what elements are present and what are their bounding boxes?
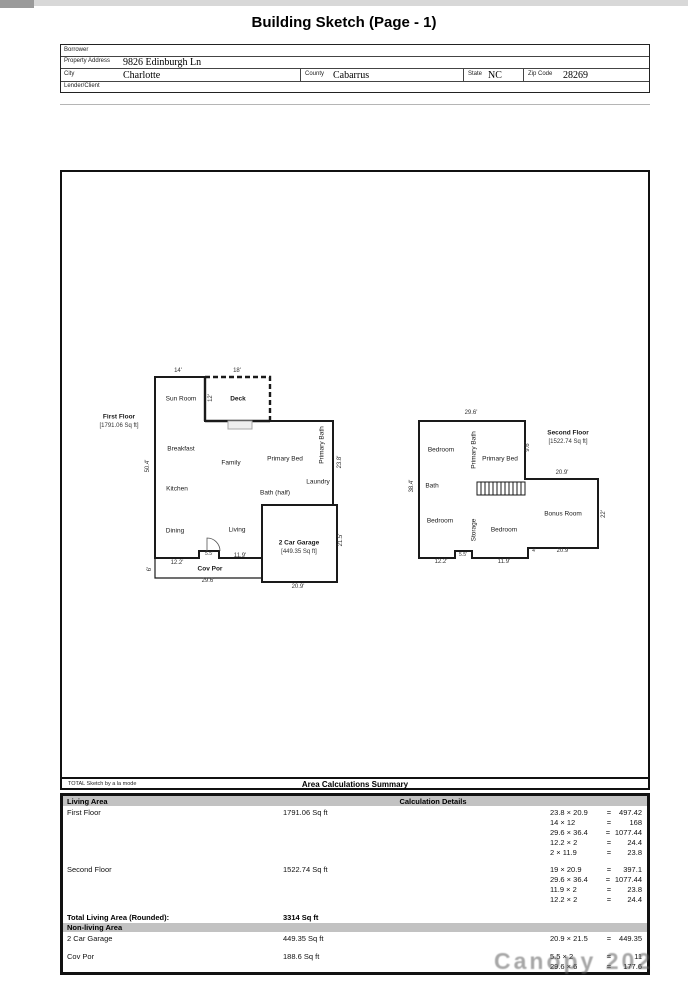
ff-room-breakfast: Breakfast (167, 446, 194, 453)
form-underline (60, 104, 650, 105)
calc-line: 29.6 × 36.4=1077.44 (550, 828, 642, 838)
ff-dim-11-9: 11.9' (234, 553, 246, 559)
ff-title: First Floor (103, 414, 135, 421)
form-col-divider (463, 68, 464, 81)
calc-result: 397.1 (616, 865, 642, 875)
watermark: Canopy 202 (494, 948, 653, 975)
form-row-divider (61, 81, 649, 82)
page-title: Building Sketch (Page - 1) (0, 14, 688, 31)
area-calculations-summary-title: Area Calculations Summary (62, 780, 648, 789)
calc-expr: 23.8 × 20.9 (550, 808, 602, 818)
ff-area: [1791.06 Sq ft] (99, 423, 138, 429)
ff-room-cov-por: Cov Por (198, 566, 223, 573)
equals-sign: = (602, 934, 616, 944)
sf-title: Second Floor (547, 430, 589, 437)
equals-sign: = (602, 865, 616, 875)
calc-expr: 11.9 × 2 (550, 885, 602, 895)
second-floor-calcs: 19 × 20.9=397.1 29.6 × 36.4=1077.44 11.9… (550, 865, 642, 905)
equals-sign: = (601, 828, 615, 838)
ff-dim-23-8: 23.8' (337, 456, 343, 469)
zip-code-value: 28269 (563, 70, 588, 81)
calc-expr: 2 × 11.9 (550, 848, 602, 858)
ff-dim-29-6: 29.6' (202, 578, 215, 584)
calc-result: 23.8 (616, 885, 642, 895)
ff-dim-14: 14' (174, 368, 182, 374)
sf-room-bath: Bath (425, 483, 438, 490)
state-label: State (468, 71, 482, 77)
calc-line: 19 × 20.9=397.1 (550, 865, 642, 875)
equals-sign: = (602, 808, 616, 818)
first-floor-row-label: First Floor (67, 808, 101, 817)
ff-room-deck: Deck (230, 396, 246, 403)
ff-room-living: Living (229, 527, 246, 534)
ff-dim-12: 12' (208, 394, 214, 402)
total-living-area-value: 3314 Sq ft (283, 913, 318, 922)
ff-room-primary-bed: Primary Bed (267, 456, 303, 463)
calc-line: 11.9 × 2=23.8 (550, 885, 642, 895)
sketch-footer-divider (62, 777, 648, 779)
living-area-header: Living Area (67, 797, 108, 806)
ff-room-sun-room: Sun Room (166, 396, 197, 403)
cov-por-row-value: 188.6 Sq ft (283, 952, 319, 961)
sf-dim-38-4: 38.4' (409, 480, 415, 493)
calc-result: 449.35 (616, 934, 642, 944)
equals-sign: = (601, 875, 615, 885)
property-form: Borrower Property Address 9826 Edinburgh… (60, 44, 650, 93)
ff-garage-area: [449.35 Sq ft] (281, 549, 317, 555)
city-label: City (64, 71, 74, 77)
calc-line: 2 × 11.9=23.8 (550, 848, 642, 858)
state-value: NC (488, 70, 502, 81)
calc-line: 20.9 × 21.5=449.35 (550, 934, 642, 944)
equals-sign: = (602, 818, 616, 828)
second-floor-row-value: 1522.74 Sq ft (283, 865, 328, 874)
ff-room-bath-half: Bath (half) (260, 490, 290, 497)
equals-sign: = (602, 895, 616, 905)
second-floor-row-label: Second Floor (67, 865, 112, 874)
sketch-box: TOTAL Sketch by a la mode Area Calculati… (60, 170, 650, 790)
non-living-area-header: Non-living Area (67, 923, 122, 932)
sf-dim-22: 22' (601, 510, 607, 518)
ff-room-garage: 2 Car Garage (279, 540, 319, 547)
calc-result: 23.8 (616, 848, 642, 858)
garage-calcs: 20.9 × 21.5=449.35 (550, 934, 642, 944)
sf-dim-9-6: 9.6' (525, 442, 531, 452)
calc-line: 29.6 × 36.4=1077.44 (550, 875, 642, 885)
ff-room-dining: Dining (166, 528, 184, 535)
sf-room-bonus-room: Bonus Room (544, 511, 582, 518)
total-living-area-label: Total Living Area (Rounded): (67, 913, 169, 922)
ff-dim-6: 6' (147, 567, 153, 571)
ff-dim-50-4: 50.4' (145, 460, 151, 473)
sf-dim-4: 4' (532, 548, 536, 554)
calc-expr: 12.2 × 2 (550, 838, 602, 848)
first-floor-row-value: 1791.06 Sq ft (283, 808, 328, 817)
equals-sign: = (602, 838, 616, 848)
ff-dim-18: 18' (233, 368, 241, 374)
ff-room-primary-bath: Primary Bath (319, 426, 326, 464)
garage-row-label: 2 Car Garage (67, 934, 112, 943)
first-floor-calcs: 23.8 × 20.9=497.42 14 × 12=168 29.6 × 36… (550, 808, 642, 858)
sf-dim-20-9-lower: 20.9' (557, 548, 570, 554)
form-row-divider (61, 68, 649, 69)
calc-expr: 19 × 20.9 (550, 865, 602, 875)
calc-expr: 20.9 × 21.5 (550, 934, 602, 944)
calc-line: 23.8 × 20.9=497.42 (550, 808, 642, 818)
calc-line: 12.2 × 2=24.4 (550, 895, 642, 905)
top-left-corner-block (0, 0, 34, 8)
cov-por-row-label: Cov Por (67, 952, 94, 961)
sf-dim-11-9: 11.9' (498, 559, 510, 565)
garage-row-value: 449.35 Sq ft (283, 934, 323, 943)
calc-line: 12.2 × 2=24.4 (550, 838, 642, 848)
sf-room-primary-bath: Primary Bath (471, 431, 478, 469)
calc-result: 24.4 (616, 838, 642, 848)
calc-result: 1077.44 (615, 828, 642, 838)
form-col-divider (300, 68, 301, 81)
calc-result: 1077.44 (615, 875, 642, 885)
lender-client-label: Lender/Client (64, 83, 100, 89)
ff-room-kitchen: Kitchen (166, 486, 188, 493)
calc-expr: 29.6 × 36.4 (550, 828, 601, 838)
property-address-value: 9826 Edinburgh Ln (123, 57, 201, 68)
sf-area: [1522.74 Sq ft] (548, 439, 587, 445)
top-gray-strip (0, 0, 688, 6)
ff-dim-5-5: 5.5' (205, 551, 213, 557)
sf-dim-20-9-upper: 20.9' (556, 470, 569, 476)
calculation-details-header: Calculation Details (353, 797, 513, 806)
form-col-divider (523, 68, 524, 81)
sf-dim-5-5: 5.5' (459, 552, 467, 558)
county-value: Cabarrus (333, 70, 369, 81)
calc-result: 497.42 (616, 808, 642, 818)
non-living-header-bar: Non-living Area (63, 923, 647, 932)
sf-room-primary-bed: Primary Bed (482, 456, 518, 463)
equals-sign: = (602, 848, 616, 858)
sf-room-bedroom-2: Bedroom (427, 518, 453, 525)
document-page: Building Sketch (Page - 1) Borrower Prop… (0, 0, 688, 996)
ff-room-family: Family (221, 460, 240, 467)
city-value: Charlotte (123, 70, 160, 81)
sf-dim-12-2: 12.2' (435, 559, 448, 565)
calc-expr: 12.2 × 2 (550, 895, 602, 905)
calc-expr: 14 × 12 (550, 818, 602, 828)
ff-dim-20-9: 20.9' (292, 584, 305, 590)
sf-room-storage: Storage (471, 519, 478, 542)
zip-code-label: Zip Code (528, 71, 552, 77)
living-area-header-bar: Living Area Calculation Details (63, 796, 647, 806)
calc-line: 14 × 12=168 (550, 818, 642, 828)
sf-dim-29-6: 29.6' (465, 410, 478, 416)
ff-dim-12-2: 12.2' (171, 560, 184, 566)
calc-result: 24.4 (616, 895, 642, 905)
calc-expr: 29.6 × 36.4 (550, 875, 601, 885)
borrower-label: Borrower (64, 47, 88, 53)
county-label: County (305, 71, 324, 77)
calc-result: 168 (616, 818, 642, 828)
sf-room-bedroom-3: Bedroom (491, 527, 517, 534)
ff-room-laundry: Laundry (306, 479, 330, 486)
sf-room-bedroom-1: Bedroom (428, 447, 454, 454)
ff-dim-21-5: 21.5' (338, 534, 344, 547)
property-address-label: Property Address (64, 58, 110, 64)
equals-sign: = (602, 885, 616, 895)
